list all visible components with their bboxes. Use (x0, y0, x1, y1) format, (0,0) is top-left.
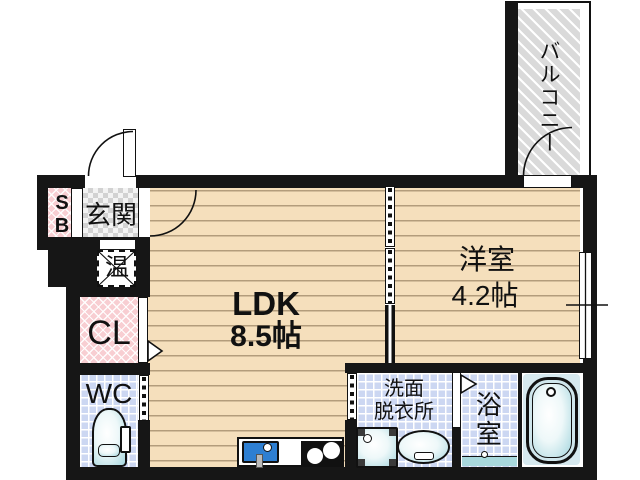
window (579, 252, 592, 359)
wall-wc-right (138, 420, 150, 467)
balcony-door-leaf (523, 175, 572, 188)
western-room-floor (395, 188, 580, 363)
heater-nook-gap (100, 240, 135, 249)
ldk-area: 8.5帖 (195, 321, 337, 353)
entrance-door-leaf (123, 129, 136, 177)
wall-tub-divider (518, 373, 522, 467)
washroom-label-line1: 洗面 (378, 379, 430, 400)
toilet-side-tank (120, 426, 131, 453)
western-room-area: 4.2帖 (430, 281, 540, 310)
wm-foot-bl (358, 459, 365, 466)
closet-door (138, 297, 148, 363)
entrance-opening (85, 175, 123, 188)
wm-inlet-icon (363, 434, 372, 443)
wm-foot-br (389, 459, 396, 466)
wall-closet-wc-divider (78, 363, 150, 375)
bathroom-label: 浴室 (473, 386, 500, 454)
wall-left-lower (66, 285, 80, 480)
balcony-wall (505, 2, 518, 175)
wall-bathdoor-base (452, 428, 461, 467)
kitchen-counter (237, 437, 344, 467)
toilet-seat (98, 444, 120, 457)
toilet-label: WC (83, 379, 135, 408)
shower-threshold (462, 456, 517, 466)
partition-wall-lower (385, 305, 395, 363)
wall-bottom (68, 467, 597, 480)
water-heater-label: 温 (103, 255, 131, 280)
vanity-tray (414, 452, 434, 460)
closet-label: CL (84, 316, 134, 352)
shoe-box-label: SB (51, 192, 72, 238)
bathroom-door-leaf (452, 372, 461, 428)
wall-top-main (136, 175, 523, 188)
kitchen-faucet-icon (263, 443, 272, 452)
floor-plan: LDK 8.5帖 洋室 4.2帖 玄関 SB 温 CL WC 洗面 脱衣所 浴室… (0, 0, 640, 480)
washroom-sliding-door (347, 373, 357, 420)
bathtub (526, 377, 578, 464)
ldk-label: LDK (200, 287, 332, 322)
balcony-label: バルコニー (537, 26, 559, 168)
washroom-label-line2: 脱衣所 (367, 402, 441, 423)
washing-machine (356, 427, 398, 468)
wall-washroom-top (345, 363, 583, 373)
partition-sliding-door-upper (385, 186, 395, 247)
entrance-label: 玄関 (82, 202, 140, 229)
kitchen-faucet-stem (256, 454, 263, 468)
stove-burner-right (323, 442, 340, 459)
toilet-sliding-door (139, 375, 149, 421)
vanity-sink (397, 430, 450, 464)
western-room-label: 洋室 (437, 245, 537, 274)
wm-foot-tr (389, 429, 396, 436)
stove-burner-left (307, 448, 323, 464)
wall-step-block (48, 250, 98, 287)
partition-sliding-door-lower (385, 248, 395, 304)
bathtub-faucet-icon (546, 387, 556, 397)
